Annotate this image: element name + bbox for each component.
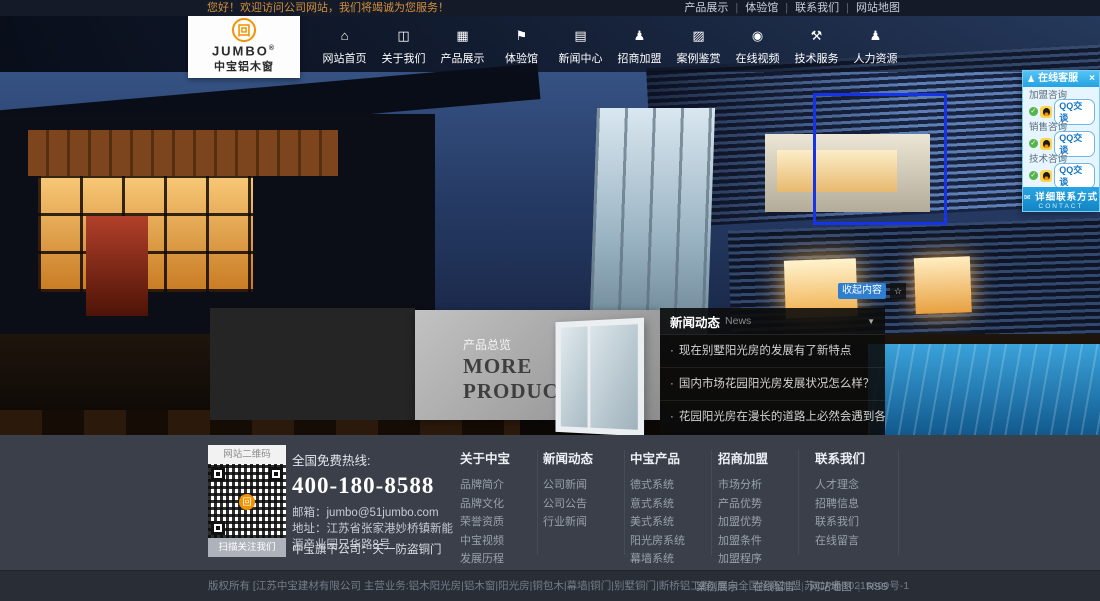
qr-header: 网站二维码	[208, 445, 286, 464]
qr-code-image: 回	[208, 464, 286, 538]
contact-block: 全国免费热线: 400-180-8588 邮箱：jumbo@51jumbo.co…	[292, 450, 460, 553]
news-header: 新闻动态 News ▼	[660, 308, 885, 335]
footer-link[interactable]: 品牌简介	[460, 476, 542, 495]
nav-item[interactable]: ▦ 产品展示	[433, 16, 492, 66]
news-list: 现在别墅阳光房的发展有了新特点国内市场花园阳光房发展状况怎么样？花园阳光房在漫长…	[660, 335, 885, 434]
top-link[interactable]: 体验馆	[728, 0, 778, 16]
experience-hall-icon: ⚑	[492, 29, 551, 45]
online-status-icon: ✓	[1029, 139, 1038, 148]
nav-item[interactable]: ◫ 关于我们	[374, 16, 433, 66]
tech-service-icon: ⚒	[787, 29, 846, 45]
online-service-header: ♟ 在线客服 ×	[1023, 71, 1099, 87]
hero-wood-ceiling	[28, 130, 338, 176]
products-overview-subtitle: 产品总览	[463, 336, 511, 353]
footer-divider	[798, 450, 799, 555]
qq-groups: 加盟咨询 ✓ QQ交谈 销售咨询 ✓ QQ交谈	[1023, 87, 1099, 185]
top-links: 产品展示体验馆联系我们网站地图	[684, 0, 900, 16]
qr-center-logo-icon: 回	[239, 494, 255, 510]
footer-column-products: 中宝产品 德式系统意式系统美式系统阳光房系统幕墙系统断桥铝系统	[630, 448, 712, 587]
nav-label: 新闻中心	[551, 50, 610, 66]
nav-label: 在线视频	[728, 50, 787, 66]
footer-link[interactable]: 幕墙系统	[630, 550, 712, 569]
logo-subtitle: 中宝铝木窗	[188, 58, 300, 74]
news-title: 新闻动态	[670, 312, 720, 331]
footer-link[interactable]: 发展历程	[460, 550, 542, 569]
about-icon: ◫	[374, 29, 433, 45]
footer-link[interactable]: 人才理念	[815, 476, 897, 495]
qr-card: 网站二维码 回 扫描关注我们	[208, 445, 286, 557]
contact-detail-button[interactable]: ✉ 详细联系方式 CONTACT	[1023, 187, 1099, 211]
footer-link[interactable]: 联系我们	[815, 513, 897, 532]
qr-caption: 扫描关注我们	[208, 538, 286, 557]
nav-label: 案例鉴赏	[669, 50, 728, 66]
welcome-text: 您好！欢迎访问公司网站，我们将竭诚为您服务！	[207, 0, 449, 16]
qq-group: 销售咨询 ✓ QQ交谈	[1029, 121, 1095, 153]
nav-label: 招商加盟	[610, 50, 669, 66]
footer-divider	[537, 450, 538, 555]
footer-column-title[interactable]: 新闻动态	[543, 448, 625, 467]
nav-item[interactable]: ⌂ 网站首页	[315, 16, 374, 66]
home-icon: ⌂	[315, 29, 374, 45]
subsidiary-line: 中宝旗下公司：天一防盗铜门	[292, 541, 442, 557]
footer-column-title[interactable]: 招商加盟	[718, 448, 800, 467]
footer-link[interactable]: 产品优势	[718, 495, 800, 514]
bottom-link[interactable]: RSS	[852, 572, 888, 601]
bottom-link[interactable]: 网站地图	[795, 572, 852, 601]
top-link[interactable]: 产品展示	[684, 0, 728, 16]
bottom-links: 案例展示在线留言网站地图RSS	[696, 571, 888, 601]
footer-column-title[interactable]: 关于中宝	[460, 448, 542, 467]
nav-label: 人力资源	[846, 50, 905, 66]
nav-item[interactable]: ⚑ 体验馆	[492, 16, 551, 66]
bottom-link[interactable]: 案例展示	[696, 572, 738, 601]
nav-item[interactable]: ◉ 在线视频	[728, 16, 787, 66]
nav-item[interactable]: ▨ 案例鉴赏	[669, 16, 728, 66]
footer-link[interactable]: 加盟优势	[718, 513, 800, 532]
brand-emblem-icon: 回	[232, 18, 256, 42]
contact-detail-sub: CONTACT	[1023, 203, 1099, 210]
footer-divider	[898, 450, 899, 555]
join-icon: ♟	[610, 29, 669, 45]
window-product-image	[555, 318, 644, 435]
logo[interactable]: 回 JUMBO® 中宝铝木窗	[188, 16, 300, 78]
footer-column-news: 新闻动态 公司新闻公司公告行业新闻	[543, 448, 625, 532]
footer-link[interactable]: 在线留言	[815, 532, 897, 551]
hotline-number: 400-180-8588	[292, 473, 460, 499]
footer-column-title[interactable]: 联系我们	[815, 448, 897, 467]
close-icon[interactable]: ×	[1089, 71, 1095, 87]
nav-label: 体验馆	[492, 50, 551, 66]
dark-placeholder-panel	[210, 308, 415, 420]
qq-group: 技术咨询 ✓ QQ交谈	[1029, 153, 1095, 185]
hero-banner: ⌂ 网站首页 ◫ 关于我们 ▦ 产品展示 ⚑	[0, 16, 1100, 435]
qq-penguin-icon	[1040, 170, 1053, 182]
online-status-icon: ✓	[1029, 171, 1038, 180]
footer-link[interactable]: 招聘信息	[815, 495, 897, 514]
products-overview-panel[interactable]: 产品总览 MORE PRODUCTS	[415, 310, 660, 420]
video-icon: ◉	[728, 29, 787, 45]
cases-icon: ▨	[669, 29, 728, 45]
qq-penguin-icon	[1040, 138, 1053, 150]
hero-lit-window	[914, 256, 972, 314]
logo-brand: JUMBO®	[188, 42, 300, 58]
nav-label: 关于我们	[374, 50, 433, 66]
footer-link[interactable]: 加盟条件	[718, 532, 800, 551]
news-item[interactable]: 国内市场花园阳光房发展状况怎么样？	[660, 368, 885, 401]
footer-link[interactable]: 公司新闻	[543, 476, 625, 495]
qq-talk-button[interactable]: QQ交谈	[1054, 163, 1095, 189]
hero-pool	[868, 344, 1100, 435]
nav-item[interactable]: ♟ 人力资源	[846, 16, 905, 66]
main-navbar: ⌂ 网站首页 ◫ 关于我们 ▦ 产品展示 ⚑	[0, 16, 1100, 72]
footer-link[interactable]: 市场分析	[718, 476, 800, 495]
news-panel: 新闻动态 News ▼ 现在别墅阳光房的发展有了新特点国内市场花园阳光房发展状况…	[660, 308, 885, 435]
hero-highlight-rect	[813, 93, 947, 225]
qq-chat-row[interactable]: ✓ QQ交谈	[1029, 102, 1095, 121]
hr-icon: ♟	[846, 29, 905, 45]
bottom-link[interactable]: 在线留言	[738, 572, 795, 601]
footer-link[interactable]: 阳光房系统	[630, 532, 712, 551]
nav-label: 技术服务	[787, 50, 846, 66]
collapse-content-button[interactable]: 收起内容	[838, 283, 886, 299]
footer-link[interactable]: 行业新闻	[543, 513, 625, 532]
footer-column-contact: 联系我们 人才理念招聘信息联系我们在线留言	[815, 448, 897, 550]
contact-detail-label: 详细联系方式	[1035, 192, 1098, 203]
top-bar: 您好！欢迎访问公司网站，我们将竭诚为您服务！ 产品展示体验馆联系我们网站地图	[0, 0, 1100, 16]
news-icon: ▤	[551, 29, 610, 45]
footer-divider	[711, 450, 712, 555]
top-link[interactable]: 联系我们	[778, 0, 839, 16]
footer: 网站二维码 回 扫描关注我们 全国免费热线: 400-180-8588 邮箱：j…	[0, 435, 1100, 570]
footer-link[interactable]: 美式系统	[630, 513, 712, 532]
footer-link[interactable]: 品牌文化	[460, 495, 542, 514]
hotline-label: 全国免费热线:	[292, 450, 460, 469]
pin-icon[interactable]: ☆	[890, 283, 906, 299]
news-item[interactable]: 现在别墅阳光房的发展有了新特点	[660, 335, 885, 368]
footer-link[interactable]: 德式系统	[630, 476, 712, 495]
nav-label: 产品展示	[433, 50, 492, 66]
qq-chat-row[interactable]: ✓ QQ交谈	[1029, 134, 1095, 153]
footer-link[interactable]: 意式系统	[630, 495, 712, 514]
top-link[interactable]: 网站地图	[839, 0, 900, 16]
online-service-title: 在线客服	[1038, 71, 1089, 87]
footer-link[interactable]: 加盟程序	[718, 550, 800, 569]
qq-penguin-icon	[1040, 106, 1053, 118]
person-icon: ♟	[1027, 71, 1035, 87]
footer-divider	[624, 450, 625, 555]
hero-red-wall	[86, 216, 148, 316]
footer-link[interactable]: 荣誉资质	[460, 513, 542, 532]
bottom-bar: 版权所有 [江苏中宝建材有限公司 主营业务:铝木阳光房|铝木窗|阳光房|铜包木|…	[0, 570, 1100, 601]
news-subtitle: News	[725, 315, 867, 327]
qq-group: 加盟咨询 ✓ QQ交谈	[1029, 89, 1095, 121]
page: 您好！欢迎访问公司网站，我们将竭诚为您服务！ 产品展示体验馆联系我们网站地图	[0, 0, 1100, 601]
chat-bubbles-icon: ✉	[1024, 193, 1032, 202]
online-status-icon: ✓	[1029, 107, 1038, 116]
nav-item[interactable]: ♟ 招商加盟	[610, 16, 669, 66]
footer-column-title[interactable]: 中宝产品	[630, 448, 712, 467]
nav-label: 网站首页	[315, 50, 374, 66]
nav-item[interactable]: ⚒ 技术服务	[787, 16, 846, 66]
chevron-down-icon[interactable]: ▼	[867, 317, 875, 326]
nav-menu: ⌂ 网站首页 ◫ 关于我们 ▦ 产品展示 ⚑	[315, 16, 905, 66]
products-icon: ▦	[433, 29, 492, 45]
online-service-panel: ♟ 在线客服 × 加盟咨询 ✓ QQ交谈	[1022, 70, 1100, 212]
hero-left-house	[0, 114, 435, 340]
qq-chat-row[interactable]: ✓ QQ交谈	[1029, 166, 1095, 185]
email-line: 邮箱：jumbo@51jumbo.com	[292, 505, 460, 521]
footer-link[interactable]: 公司公告	[543, 495, 625, 514]
news-item[interactable]: 花园阳光房在漫长的道路上必然会遇到各种挑战	[660, 401, 885, 434]
nav-item[interactable]: ▤ 新闻中心	[551, 16, 610, 66]
footer-link[interactable]: 中宝视频	[460, 532, 542, 551]
footer-column-about: 关于中宝 品牌简介品牌文化荣誉资质中宝视频发展历程品牌形象	[460, 448, 542, 587]
